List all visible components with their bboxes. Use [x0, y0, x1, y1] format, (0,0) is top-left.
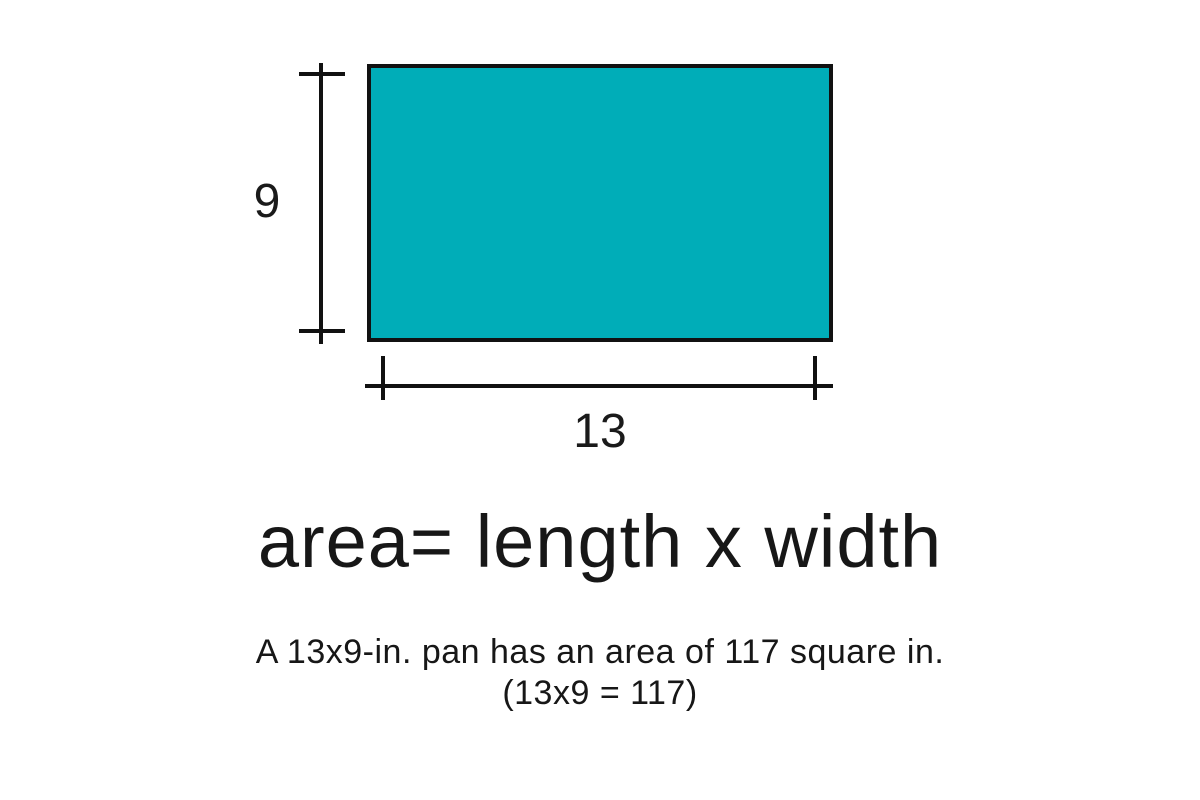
height-dimension-label: 9 [237, 178, 297, 226]
height-dimension-tick-top [299, 72, 345, 76]
area-diagram-canvas: 9 13 area= length x width A 13x9-in. pan… [0, 0, 1200, 800]
width-dimension-tick-right [813, 356, 817, 400]
height-dimension-tick-bottom [299, 329, 345, 333]
caption-line-2: (13x9 = 117) [0, 673, 1200, 714]
width-dimension-label: 13 [555, 408, 645, 456]
width-dimension-line [365, 384, 833, 388]
pan-rectangle [367, 64, 833, 342]
width-dimension-tick-left [381, 356, 385, 400]
caption-line-1: A 13x9-in. pan has an area of 117 square… [0, 632, 1200, 673]
height-dimension-line [319, 63, 323, 344]
area-formula-heading: area= length x width [0, 503, 1200, 581]
